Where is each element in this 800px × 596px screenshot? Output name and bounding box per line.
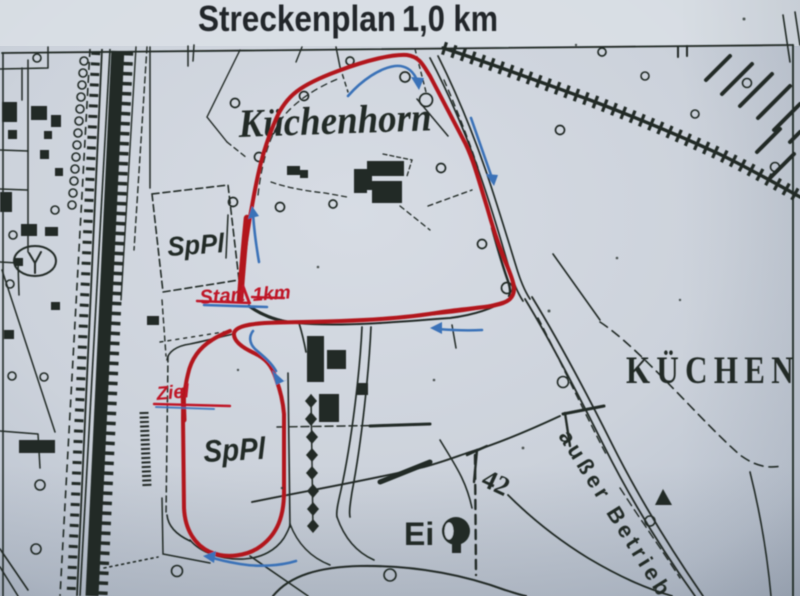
svg-text:KÜCHEN: KÜCHEN — [626, 349, 800, 392]
svg-text:Ei: Ei — [404, 516, 434, 552]
svg-text:Ziel: Ziel — [155, 381, 191, 405]
svg-text:1,0 km: 1,0 km — [402, 0, 498, 39]
svg-text:Streckenplan: Streckenplan — [198, 0, 396, 39]
svg-text:1km: 1km — [252, 282, 292, 306]
svg-text:SpPl: SpPl — [203, 431, 268, 469]
svg-text:SpPl: SpPl — [166, 228, 225, 262]
svg-text:Küchenhorn: Küchenhorn — [237, 94, 432, 146]
